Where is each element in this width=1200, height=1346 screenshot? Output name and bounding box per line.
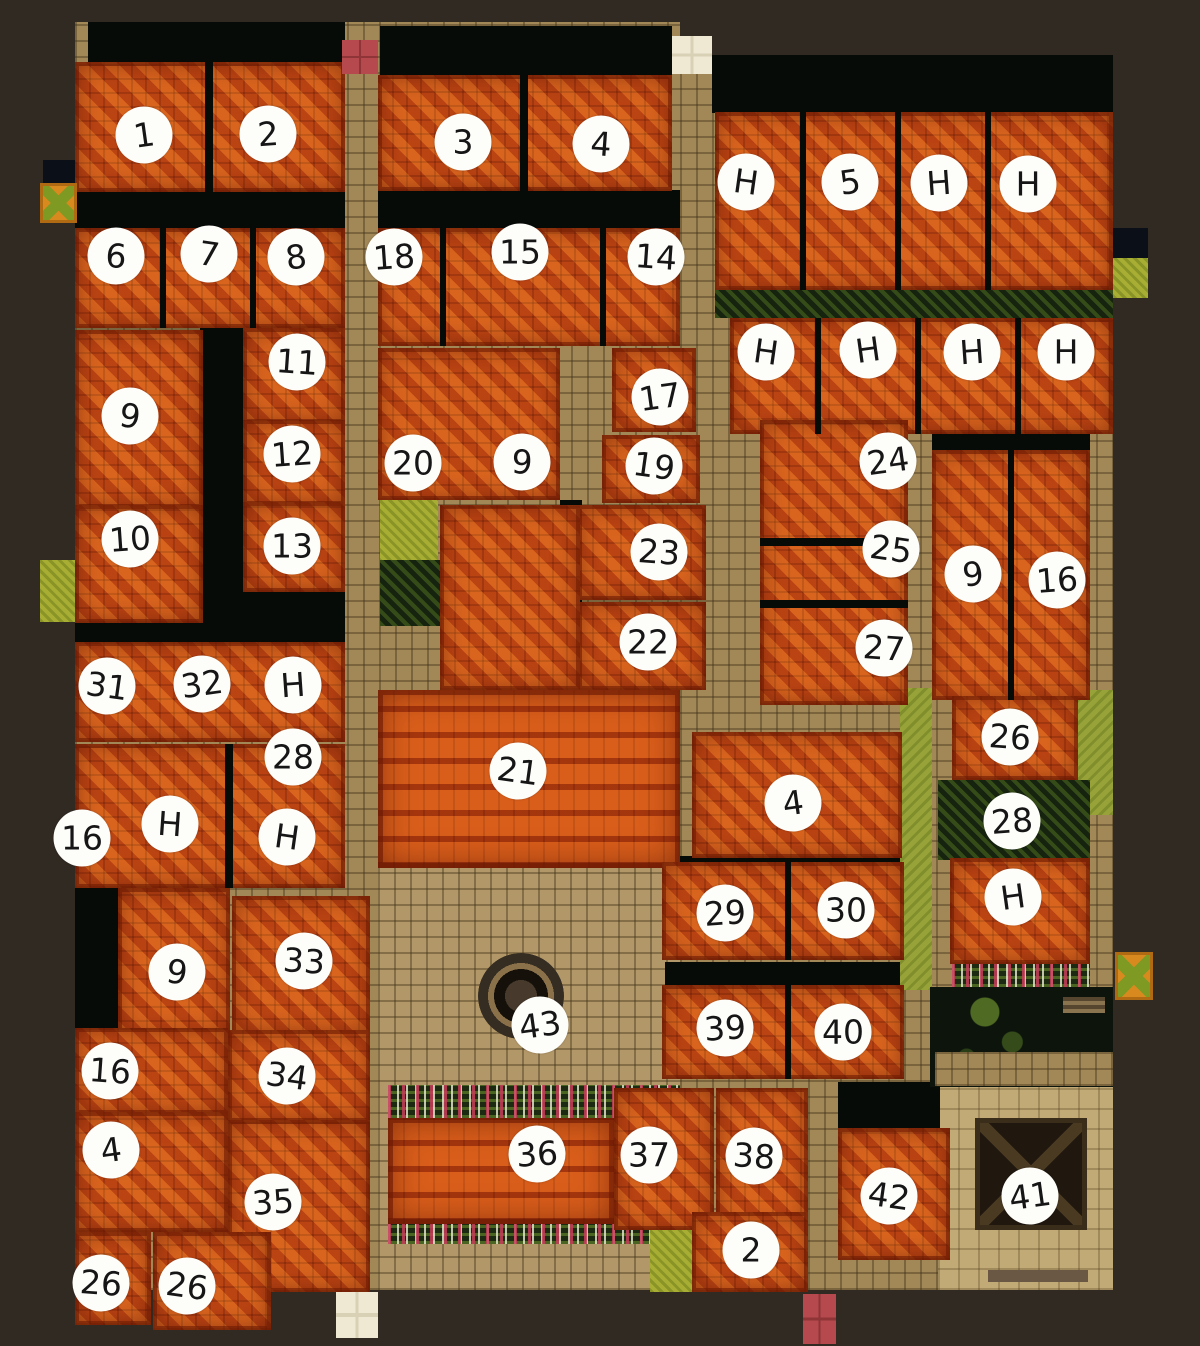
map-marker-26: 26 (155, 1254, 219, 1318)
map-marker-9: 9 (492, 432, 553, 493)
map-marker-11: 11 (267, 332, 328, 393)
map-marker-28: 28 (265, 729, 322, 786)
map-marker-21: 21 (486, 739, 550, 803)
map-marker-14: 14 (626, 227, 687, 288)
map-marker-H: H (1038, 324, 1095, 381)
map-marker-12: 12 (262, 424, 323, 485)
map-marker-33: 33 (274, 931, 335, 992)
map-marker-26: 26 (980, 707, 1041, 768)
map-marker-1: 1 (112, 103, 176, 167)
map-marker-6: 6 (86, 226, 147, 287)
map-marker-16: 16 (1027, 550, 1088, 611)
map-marker-4: 4 (79, 1118, 143, 1182)
map-marker-29: 29 (695, 883, 756, 944)
map-marker-38: 38 (724, 1126, 785, 1187)
map-marker-8: 8 (264, 225, 328, 289)
map-marker-27: 27 (854, 618, 915, 679)
map-marker-2: 2 (723, 1222, 780, 1279)
map-marker-19: 19 (622, 434, 686, 498)
map-marker-H: H (909, 153, 970, 214)
map-marker-2: 2 (238, 104, 299, 165)
map-marker-5: 5 (818, 150, 882, 214)
map-marker-9: 9 (941, 542, 1005, 606)
map-marker-15: 15 (492, 224, 549, 281)
map-marker-42: 42 (857, 1164, 921, 1228)
map-marker-23: 23 (629, 522, 690, 583)
map-marker-41: 41 (998, 1164, 1062, 1228)
map-marker-H: H (255, 805, 319, 869)
map-marker-H: H (140, 794, 201, 855)
map-marker-39: 39 (695, 998, 756, 1059)
map-marker-43: 43 (508, 993, 572, 1057)
map-marker-30: 30 (818, 882, 875, 939)
map-marker-26: 26 (71, 1253, 132, 1314)
map-marker-7: 7 (177, 222, 241, 286)
map-marker-4: 4 (761, 771, 825, 835)
map-marker-32: 32 (170, 652, 234, 716)
map-marker-4: 4 (571, 114, 632, 175)
map-marker-20: 20 (385, 435, 442, 492)
map-marker-24: 24 (856, 429, 920, 493)
map-marker-18: 18 (364, 227, 425, 288)
map-marker-36: 36 (507, 1124, 568, 1185)
map-marker-H: H (734, 320, 798, 384)
map-marker-13: 13 (264, 518, 321, 575)
map-marker-16: 16 (80, 1041, 141, 1102)
map-marker-35: 35 (243, 1172, 304, 1233)
map-marker-10: 10 (100, 509, 161, 570)
map-marker-40: 40 (815, 1004, 872, 1061)
map-marker-17: 17 (628, 365, 692, 429)
town-map-scene: 1234H5HH678181514HHHH1191712209192410132… (0, 0, 1200, 1346)
map-marker-H: H (1000, 156, 1057, 213)
map-marker-H: H (836, 318, 900, 382)
map-marker-3: 3 (435, 114, 492, 171)
map-markers: 1234H5HH678181514HHHH1191712209192410132… (0, 0, 1200, 1346)
map-marker-H: H (714, 150, 778, 214)
map-marker-25: 25 (859, 517, 923, 581)
map-marker-31: 31 (75, 654, 139, 718)
map-marker-H: H (981, 865, 1045, 929)
map-marker-16: 16 (54, 810, 111, 867)
map-marker-37: 37 (621, 1127, 678, 1184)
map-marker-9: 9 (98, 384, 162, 448)
map-marker-H: H (263, 655, 324, 716)
map-marker-28: 28 (982, 791, 1043, 852)
map-marker-H: H (942, 322, 1003, 383)
map-marker-9: 9 (145, 940, 209, 1004)
map-marker-22: 22 (620, 614, 677, 671)
map-marker-34: 34 (255, 1044, 319, 1108)
